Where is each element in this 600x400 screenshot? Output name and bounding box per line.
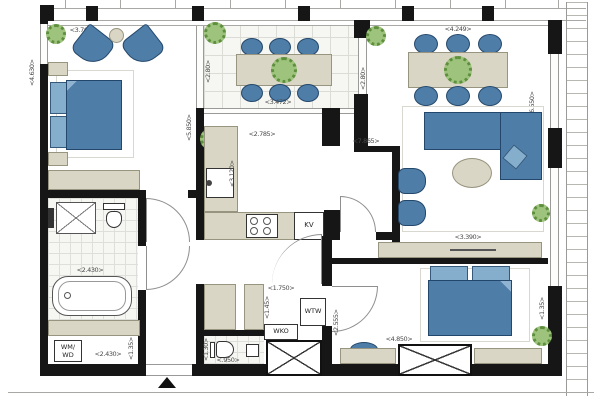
wall (332, 258, 548, 264)
dim-apartment-length: <7.865> (342, 138, 390, 145)
gallery-edge (566, 2, 588, 396)
shaft (398, 344, 472, 376)
bottom-edge-line (8, 392, 594, 393)
facade-tick (65, 0, 66, 8)
door-arc (272, 234, 322, 284)
dim-toilet-height: <1.30> (203, 339, 210, 361)
bed (428, 280, 512, 336)
door-arc (340, 196, 376, 232)
wko-label: WKO (265, 325, 297, 338)
dim-balcony-width: <3.472> (254, 99, 302, 106)
wall (322, 108, 340, 146)
toilet-tank (103, 203, 125, 210)
dim-toilet-width: <.950> (214, 357, 242, 364)
door-arc (146, 246, 190, 290)
wall (188, 190, 196, 198)
facade-tick (505, 0, 506, 8)
door-arc (146, 198, 190, 242)
wtw-label: WTW (301, 299, 325, 324)
mullion (482, 6, 494, 21)
dim-kitchen-height: <3.120> (229, 158, 237, 190)
wall (40, 190, 146, 198)
radiator (48, 208, 54, 228)
facade-tick (558, 0, 559, 8)
dim-utility-width: <2.430> (84, 351, 132, 358)
wardrobe (340, 348, 396, 364)
faucet-icon (206, 180, 212, 186)
mullion (86, 6, 98, 21)
facade-tick (395, 0, 396, 8)
facade-tick (340, 0, 341, 8)
dim-hall-height: <1.45> (264, 296, 272, 320)
burner-icon (250, 227, 258, 235)
window (196, 26, 204, 108)
hall-cabinet (204, 284, 236, 330)
burner-icon (263, 227, 271, 235)
wardrobe (474, 348, 542, 364)
dim-bedroom2-height: <2.555> (333, 306, 341, 340)
burner-icon (263, 217, 271, 225)
side-table (109, 28, 124, 43)
plant-icon (366, 26, 386, 46)
dim-balcony-right: <2.80> (360, 66, 368, 92)
facade-tick (230, 0, 231, 8)
dim-bedroom2-right: <1.35> (539, 296, 547, 322)
mullion (298, 6, 310, 21)
facade-tick (450, 0, 451, 8)
wko-box: WKO (264, 324, 298, 340)
nightstand (48, 152, 68, 166)
wall (322, 326, 332, 376)
dim-utility-height: <1.35> (128, 340, 136, 360)
wall (548, 128, 562, 168)
dim-bedroom2-width: <4.850> (376, 336, 422, 343)
armchair (398, 200, 426, 226)
dim-kitchen-width: <2.785> (238, 131, 286, 138)
armchair (398, 168, 426, 194)
dining-chair (446, 34, 470, 54)
wall (196, 330, 264, 336)
dim-hall-width: <1.750> (260, 285, 302, 292)
floor-plan: <3.768> <4.630> <3.472> <2.80> <2.80> KV… (0, 0, 600, 400)
dining-chair (414, 86, 438, 106)
drain-icon (64, 292, 71, 299)
facade-tick (120, 0, 121, 8)
wall (548, 20, 562, 54)
shaft (266, 340, 322, 376)
shower (56, 202, 96, 234)
wall (322, 236, 332, 286)
hand-basin (246, 344, 259, 357)
facade-tick (285, 0, 286, 8)
dining-chair (478, 34, 502, 54)
dim-bedroom1-height: <4.630> (29, 54, 38, 92)
washer-box: WM/ WD (54, 340, 82, 362)
plant-icon (271, 57, 297, 83)
dim-living-width: <4.249> (434, 26, 482, 33)
dim-balcony-left: <2.80> (205, 58, 213, 86)
entry-opening (146, 364, 192, 376)
entry-arrow-icon (158, 377, 176, 388)
bed (66, 80, 122, 150)
plant-icon (444, 56, 472, 84)
window (550, 168, 559, 286)
cabinet (48, 320, 140, 336)
toilet-bowl (106, 211, 122, 228)
wall (196, 108, 204, 240)
burner-icon (250, 217, 258, 225)
mullion (192, 6, 204, 21)
window (550, 54, 559, 128)
coffee-table (452, 158, 492, 188)
toilet-tank (210, 342, 215, 358)
nightstand (48, 62, 68, 76)
facade-tick (175, 0, 176, 8)
mullion (40, 5, 54, 21)
sofa-chaise (500, 112, 542, 180)
dining-chair (414, 34, 438, 54)
facade-line (40, 8, 586, 9)
plant-icon (532, 204, 550, 222)
dim-kitchen-left: <5.850> (186, 110, 195, 146)
mullion (402, 6, 414, 21)
dining-chair (446, 86, 470, 106)
dim-sideboard: <3.390> (446, 234, 490, 241)
wtw-box: WTW (300, 298, 326, 326)
facade-line (40, 20, 586, 21)
plant-icon (532, 326, 552, 346)
fan-chair (119, 23, 166, 70)
washer-label-2: WD (55, 352, 81, 360)
dim-bath-width: <2.430> (66, 267, 114, 274)
plant-icon (204, 22, 226, 44)
dining-chair (478, 86, 502, 106)
wardrobe (48, 170, 140, 190)
sideboard-handle (450, 249, 496, 251)
wall (138, 198, 146, 246)
